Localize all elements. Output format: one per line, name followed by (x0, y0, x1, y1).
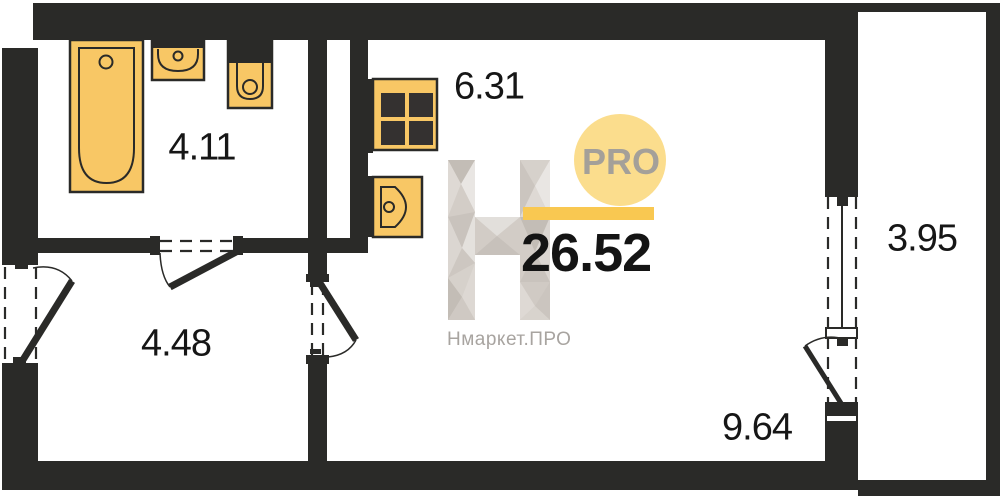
kitchen-sink-icon (368, 176, 422, 237)
bathroom-door-arc (160, 253, 170, 287)
room-area-bathroom: 4.11 (168, 127, 235, 170)
balcony-door-leaf (805, 346, 844, 408)
accent-bar (523, 207, 654, 220)
room-area-hallway: 4.48 (141, 323, 211, 366)
bathtub-icon (70, 40, 143, 192)
balcony-door-arc (805, 337, 844, 346)
pro-badge-label: PRO (582, 141, 660, 182)
watermark-site-name: Нмаркет.ПРО (447, 329, 571, 351)
bathroom-door-leaf (170, 252, 236, 287)
toilet-icon (228, 40, 272, 108)
floor-plan: PRO (0, 0, 1000, 496)
stove-icon (368, 79, 437, 153)
room-door-arc (328, 340, 356, 357)
entry-door-arc (33, 267, 72, 281)
room-area-kitchen: 6.31 (454, 66, 524, 109)
pro-badge: PRO (574, 114, 666, 206)
total-area: 26.52 (521, 226, 651, 280)
entry-door-leaf (21, 281, 72, 363)
washbasin-icon (152, 40, 204, 80)
room-area-living: 9.64 (722, 407, 792, 450)
room-area-balcony: 3.95 (887, 218, 957, 261)
